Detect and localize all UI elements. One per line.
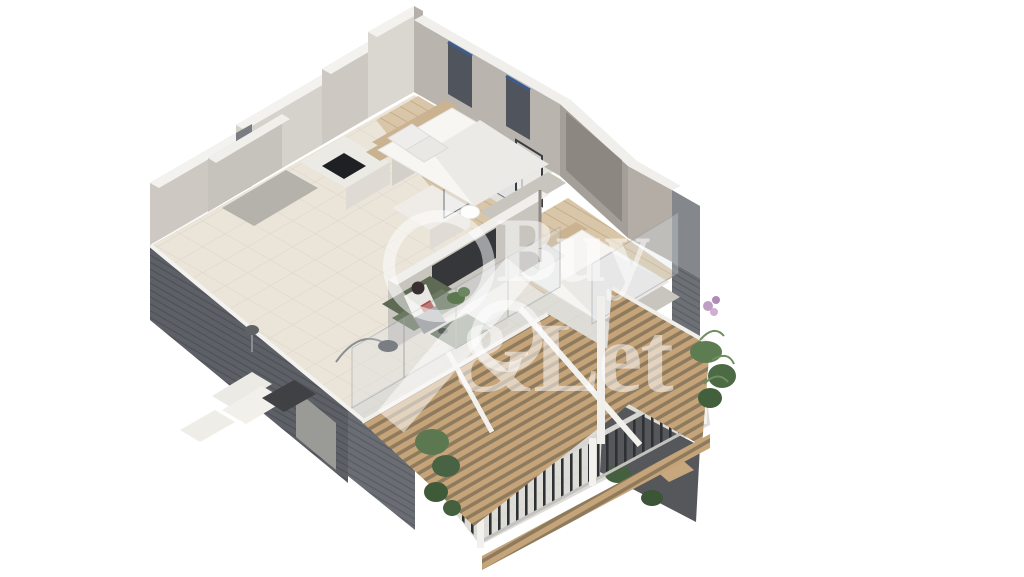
watermark-ring-small-icon xyxy=(471,300,543,372)
pergola-divider-post xyxy=(597,296,605,444)
floorplan-render: Buy &Let xyxy=(0,0,1024,577)
ottoman-white xyxy=(180,410,235,442)
